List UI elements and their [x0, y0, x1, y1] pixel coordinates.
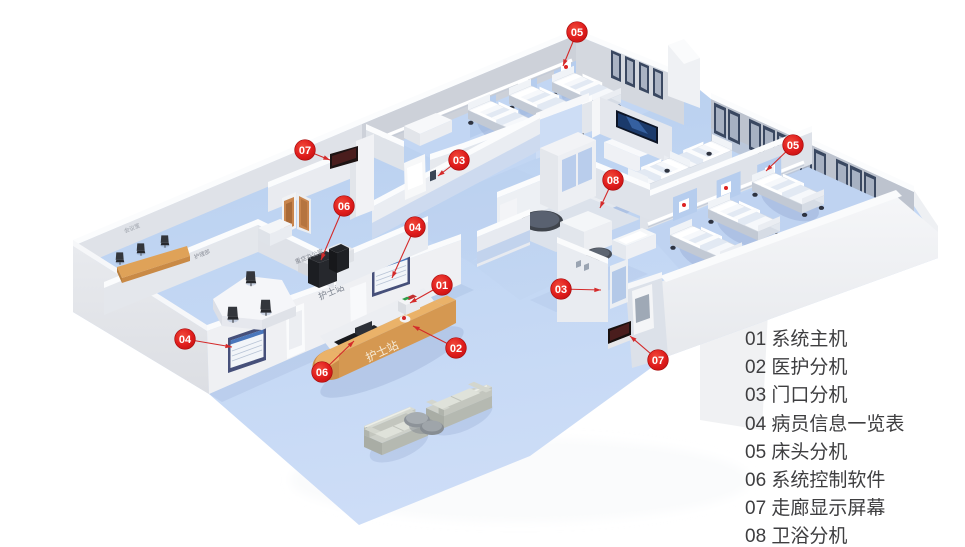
svg-text:04: 04 — [179, 334, 192, 346]
svg-text:01: 01 — [436, 280, 448, 292]
svg-text:08: 08 — [607, 175, 619, 187]
svg-text:03: 03 — [453, 155, 465, 167]
svg-text:02 医护分机: 02 医护分机 — [745, 356, 847, 378]
svg-text:06 系统控制软件: 06 系统控制软件 — [745, 469, 885, 491]
svg-text:04: 04 — [409, 222, 422, 234]
svg-text:05: 05 — [571, 27, 583, 39]
svg-text:01 系统主机: 01 系统主机 — [745, 328, 847, 350]
svg-text:03: 03 — [555, 284, 567, 296]
svg-text:06: 06 — [338, 201, 350, 213]
svg-text:04 病员信息一览表: 04 病员信息一览表 — [745, 413, 904, 435]
svg-text:05: 05 — [787, 140, 799, 152]
svg-text:07: 07 — [299, 145, 311, 157]
svg-text:03 门口分机: 03 门口分机 — [745, 384, 847, 406]
svg-text:02: 02 — [450, 343, 462, 355]
svg-text:08 卫浴分机: 08 卫浴分机 — [745, 525, 847, 547]
svg-text:07 走廊显示屏幕: 07 走廊显示屏幕 — [745, 497, 885, 519]
svg-text:05 床头分机: 05 床头分机 — [745, 441, 847, 463]
svg-text:07: 07 — [652, 355, 664, 367]
svg-text:06: 06 — [316, 367, 328, 379]
